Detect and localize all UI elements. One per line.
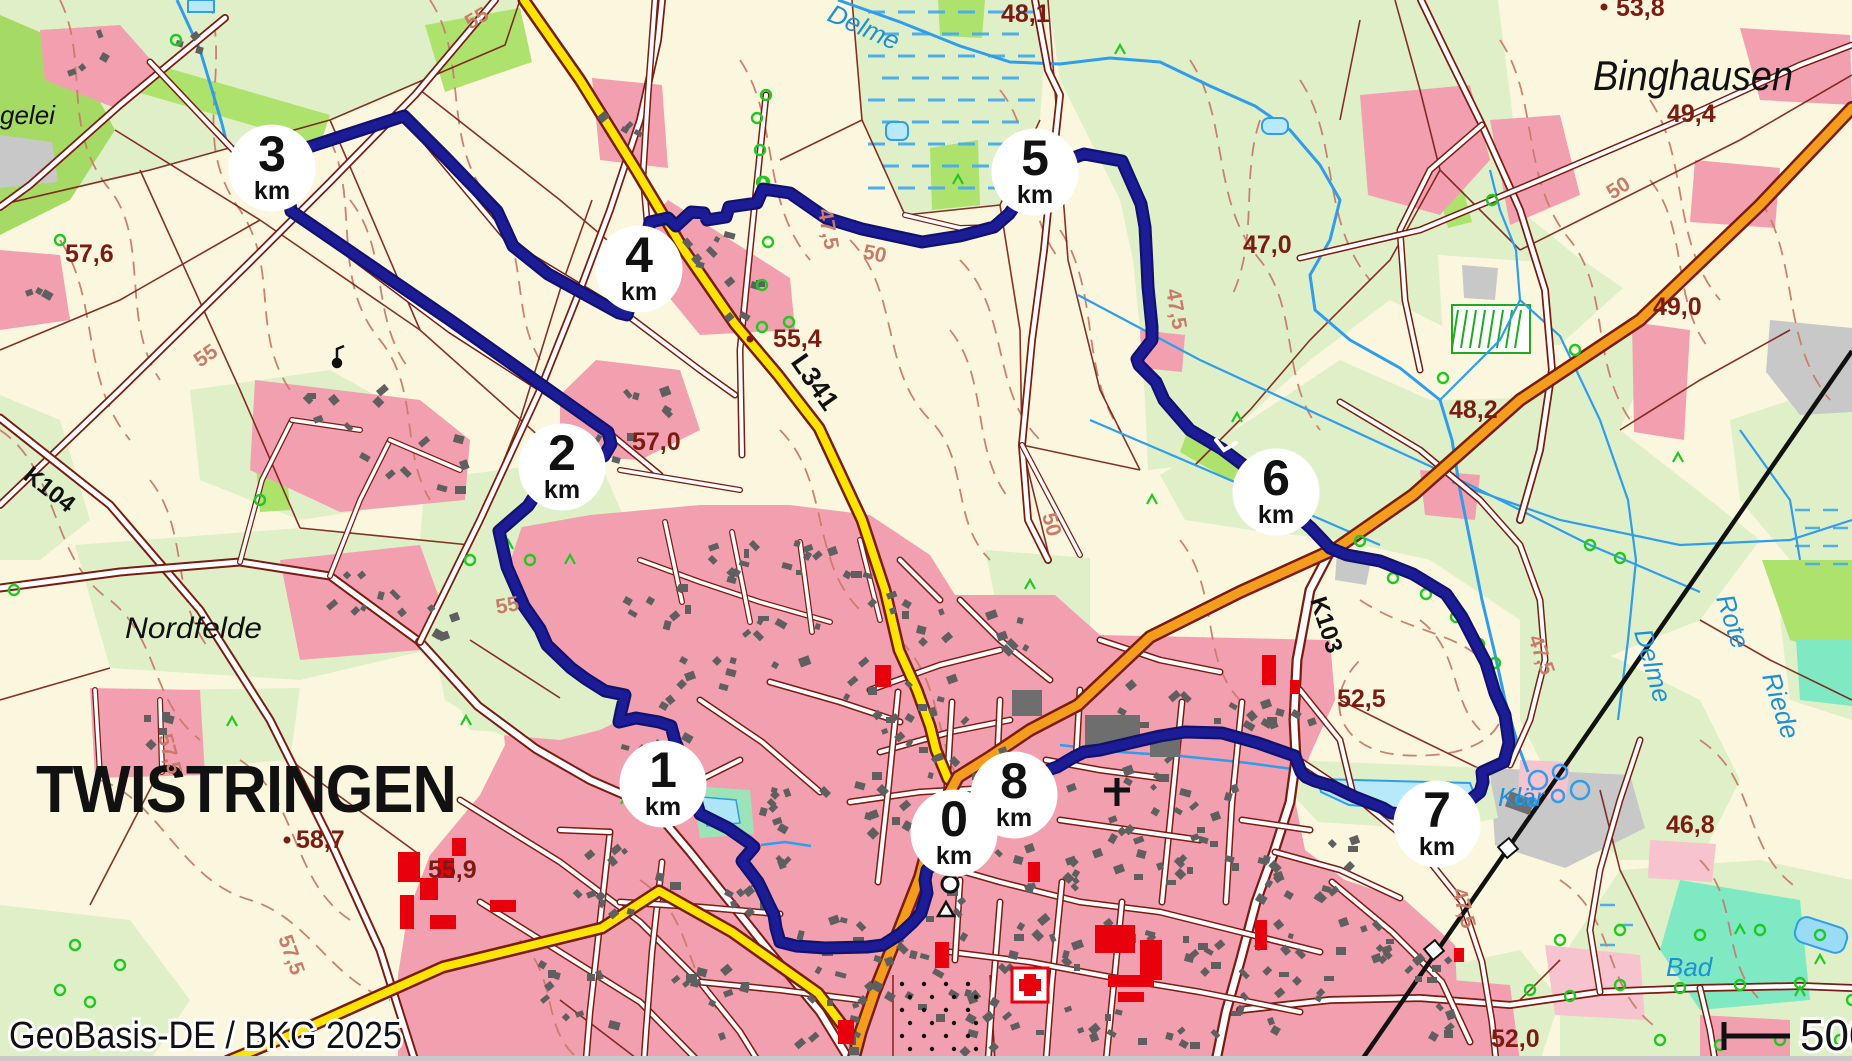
svg-text:6: 6 xyxy=(1262,450,1290,506)
svg-text:5: 5 xyxy=(1021,130,1049,186)
svg-text:4: 4 xyxy=(625,227,653,283)
svg-text:57,0: 57,0 xyxy=(632,428,681,456)
svg-text:47,0: 47,0 xyxy=(1243,231,1292,259)
svg-text:55: 55 xyxy=(494,592,521,619)
svg-text:55,9: 55,9 xyxy=(428,856,477,884)
svg-text:2: 2 xyxy=(548,425,576,481)
svg-text:GeoBasis-DE / BKG 2025: GeoBasis-DE / BKG 2025 xyxy=(9,1015,402,1057)
svg-text:1: 1 xyxy=(649,742,677,798)
svg-text:0: 0 xyxy=(940,791,968,847)
svg-text:Nordfelde: Nordfelde xyxy=(125,612,262,645)
svg-text:km: km xyxy=(645,793,681,821)
svg-text:km: km xyxy=(544,476,580,504)
svg-text:500: 500 xyxy=(1800,1011,1852,1060)
svg-text:km: km xyxy=(254,177,290,205)
svg-text:km: km xyxy=(621,278,657,306)
svg-text:km: km xyxy=(1258,501,1294,529)
svg-text:TWISTRINGEN: TWISTRINGEN xyxy=(36,752,456,827)
svg-text:52,0: 52,0 xyxy=(1491,1025,1540,1053)
svg-text:km: km xyxy=(1419,833,1455,861)
svg-text:46,8: 46,8 xyxy=(1666,811,1715,839)
svg-text:50: 50 xyxy=(861,240,889,267)
svg-text:48,1: 48,1 xyxy=(1001,0,1050,28)
svg-text:49,4: 49,4 xyxy=(1667,100,1716,128)
svg-text:52,5: 52,5 xyxy=(1337,685,1386,713)
svg-text:55,4: 55,4 xyxy=(773,325,822,353)
svg-text:Klär: Klär xyxy=(1498,782,1546,812)
svg-text:58,7: 58,7 xyxy=(296,826,345,854)
svg-text:48,2: 48,2 xyxy=(1449,396,1498,424)
svg-text:53,8: 53,8 xyxy=(1616,0,1665,22)
svg-text:Bad: Bad xyxy=(1666,952,1714,982)
svg-text:km: km xyxy=(936,842,972,870)
svg-text:57,6: 57,6 xyxy=(65,240,114,268)
svg-text:8: 8 xyxy=(1000,753,1028,809)
svg-text:49,0: 49,0 xyxy=(1653,293,1702,321)
svg-text:Binghausen: Binghausen xyxy=(1593,52,1793,99)
svg-text:gelei: gelei xyxy=(0,100,56,130)
svg-text:3: 3 xyxy=(258,126,286,182)
svg-text:km: km xyxy=(1017,181,1053,209)
svg-text:7: 7 xyxy=(1423,782,1451,838)
svg-text:km: km xyxy=(996,804,1032,832)
